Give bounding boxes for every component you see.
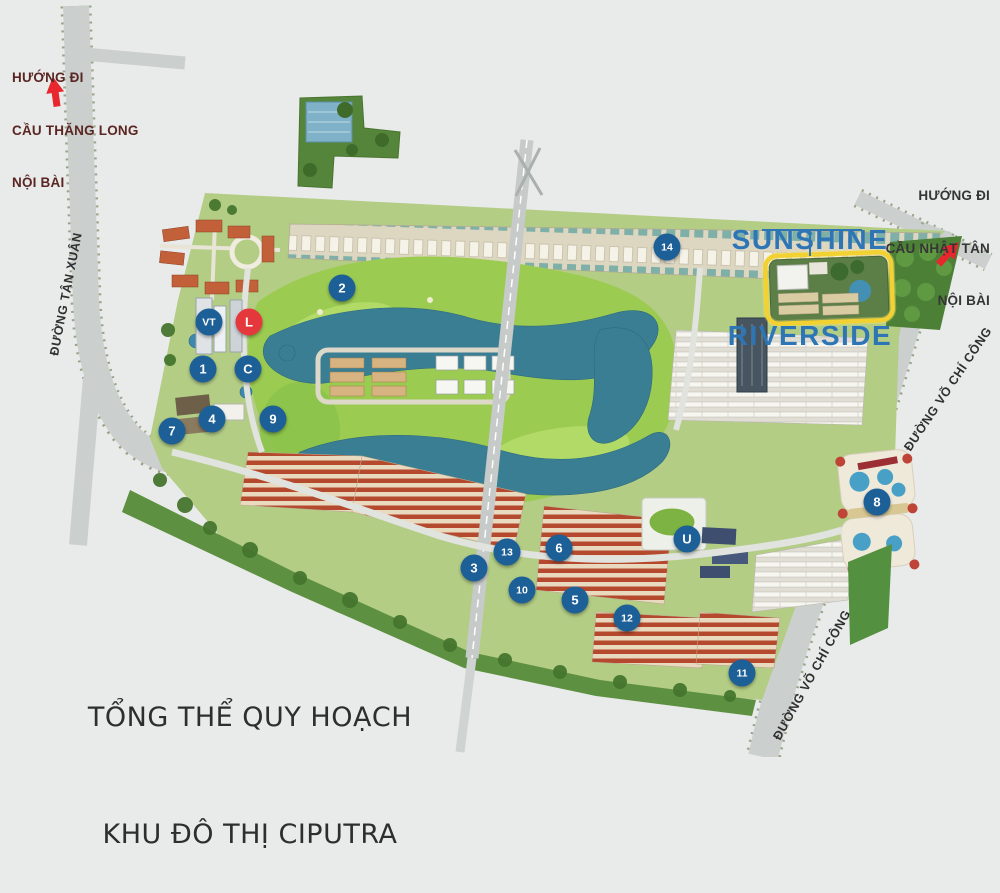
project-name-line1: SUNSHINE — [718, 224, 902, 256]
direction-line: CẦU THĂNG LONG — [12, 122, 139, 140]
direction-line: NỘI BÀI — [12, 174, 139, 192]
masterplan-page: HƯỚNG ĐI CẦU THĂNG LONG NỘI BÀI HƯỚNG ĐI… — [0, 0, 1000, 757]
direction-thang-long-label: HƯỚNG ĐI CẦU THĂNG LONG NỘI BÀI — [12, 34, 139, 209]
direction-line: HƯỚNG ĐI — [12, 69, 139, 87]
project-name-line2: RIVERSIDE — [718, 320, 902, 352]
page-title-line2: KHU ĐÔ THỊ CIPUTRA — [70, 815, 430, 854]
page-title-line1: TỔNG THỂ QUY HOẠCH — [70, 698, 430, 737]
project-name-label: SUNSHINE RIVERSIDE — [718, 160, 902, 384]
north-park — [298, 96, 400, 188]
